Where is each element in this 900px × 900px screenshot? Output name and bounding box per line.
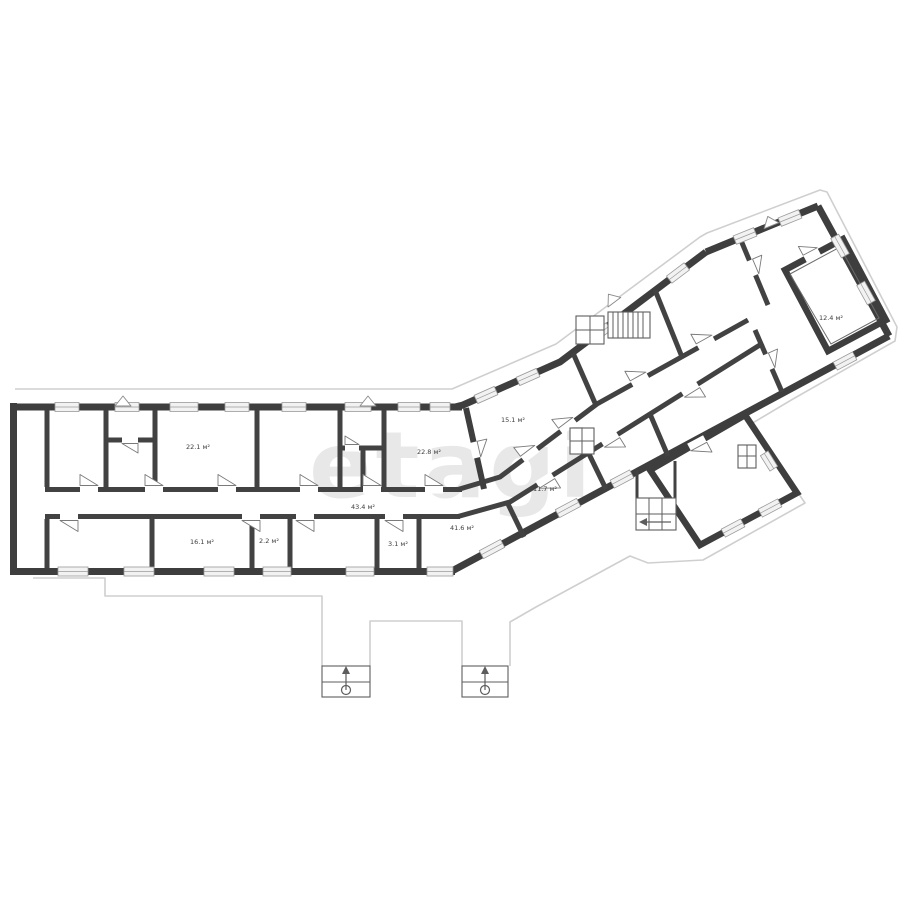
room-area-label: 12.4 м²: [819, 314, 843, 322]
fixture-grid: [738, 445, 756, 468]
window-marker: [55, 403, 79, 412]
floor-plan-page: etagi: [0, 0, 900, 900]
staircase-bottom: [636, 498, 676, 530]
room-area-label: 3.1 м²: [388, 540, 408, 548]
entrance-porch-1: [322, 666, 370, 697]
room-area-label: 43.4 м²: [351, 503, 375, 511]
room-area-label: 11.7 м²: [533, 485, 557, 493]
staircase-top: [576, 312, 650, 344]
entrance-porch-2: [462, 666, 508, 697]
room-area-label: 15.1 м²: [501, 416, 525, 424]
room-area-label: 16.1 м²: [190, 538, 214, 546]
casement-mark-icon: [115, 396, 131, 406]
wc-fixture: [570, 428, 594, 454]
room-area-label: 22.8 м²: [417, 448, 441, 456]
door-marker: [80, 475, 98, 494]
room-area-label: 2.2 м²: [259, 537, 279, 545]
room-area-label: 41.6 м²: [450, 524, 474, 532]
floor-plan-svg: etagi: [0, 0, 900, 900]
room-area-label: 22.1 м²: [186, 443, 210, 451]
casement-marks: [115, 213, 779, 406]
